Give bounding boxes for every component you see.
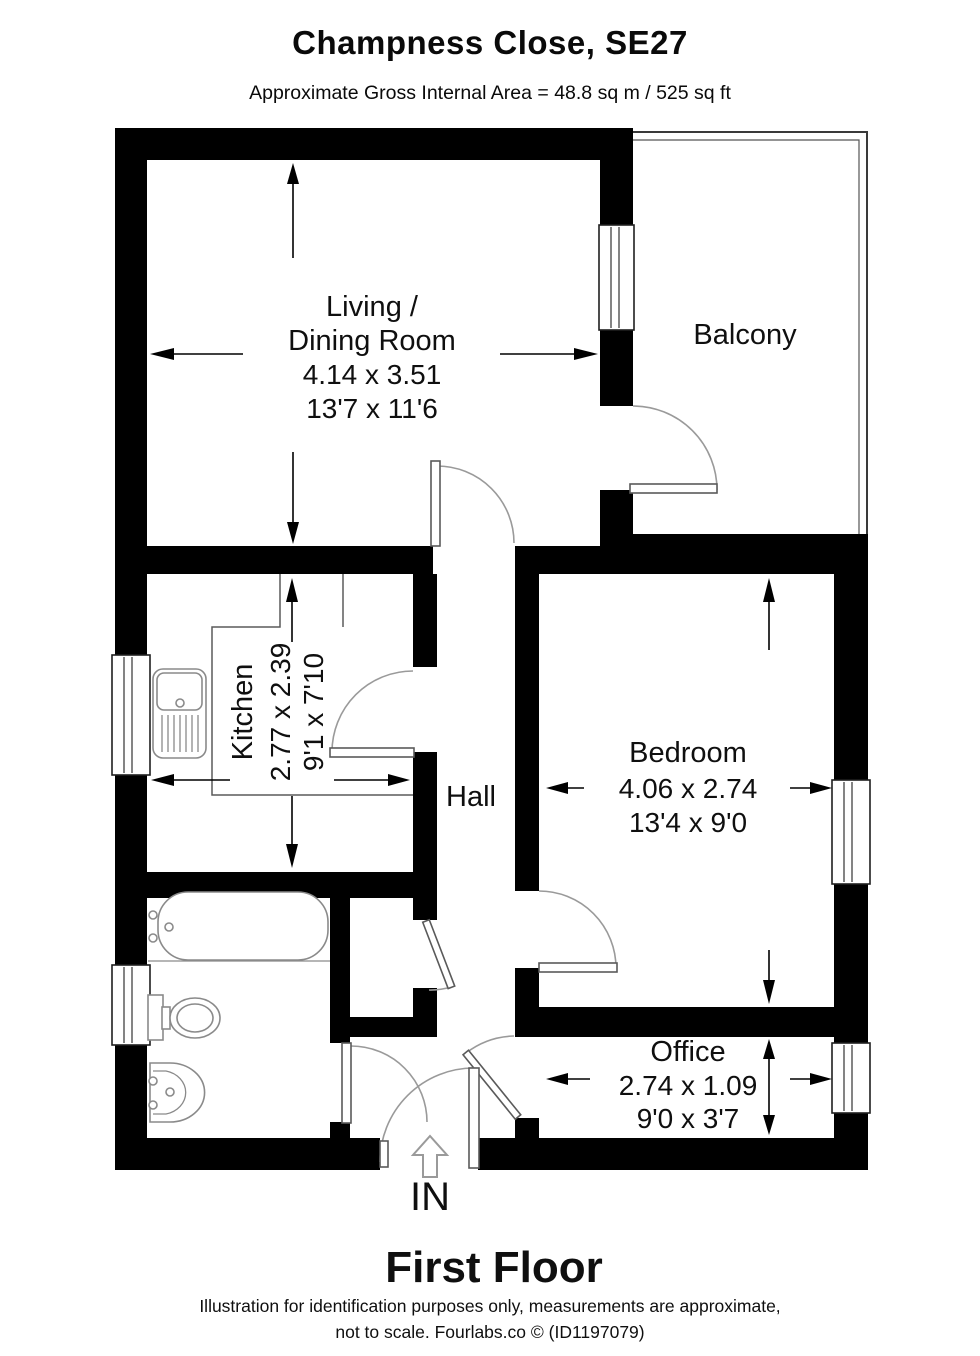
living-room-name-line2: Dining Room [288,325,456,357]
door-living-to-balcony [630,406,717,493]
footer-line1: Illustration for identification purposes… [199,1296,780,1316]
kitchen-size-metric: 2.77 x 2.39 [265,643,296,782]
label-balcony: Balcony [693,319,797,351]
bedroom-size-imperial: 13'4 x 9'0 [629,807,747,838]
window-bedroom-icon [832,780,870,884]
floor-label: First Floor [385,1243,603,1292]
kitchen-name: Kitchen [227,664,259,761]
window-living-balcony-icon [599,225,634,330]
label-office: Office 2.74 x 1.09 9'0 x 3'7 [619,1036,758,1134]
hall-name: Hall [446,781,496,813]
door-living-to-hall [431,461,514,546]
door-cupboard [423,920,455,990]
floorplan-drawing: Living / Dining Room 4.14 x 3.51 13'7 x … [0,0,980,1356]
entrance-arrow-icon [413,1136,447,1177]
bedroom-name: Bedroom [629,737,747,769]
label-bedroom: Bedroom 4.06 x 2.74 13'4 x 9'0 [619,737,758,838]
toilet-icon [148,995,220,1040]
floorplan-page: Champness Close, SE27 Approximate Gross … [0,0,980,1356]
balcony-name: Balcony [693,319,797,351]
kitchen-size-imperial: 9'1 x 7'10 [298,653,329,771]
entrance-label: IN [410,1175,450,1219]
door-bedroom [539,891,617,972]
bedroom-size-metric: 4.06 x 2.74 [619,773,758,804]
footer: Illustration for identification purposes… [199,1296,780,1342]
basin-icon [149,1063,205,1122]
window-office-icon [832,1043,870,1113]
walls [115,128,868,1170]
office-size-metric: 2.74 x 1.09 [619,1070,758,1101]
window-kitchen-icon [112,655,150,775]
office-size-imperial: 9'0 x 3'7 [637,1103,740,1134]
entrance: IN [410,1136,450,1219]
label-kitchen: Kitchen 2.77 x 2.39 9'1 x 7'10 [227,643,329,782]
label-living-dining-room: Living / Dining Room 4.14 x 3.51 13'7 x … [288,291,456,424]
footer-line2: not to scale. Fourlabs.co © (ID1197079) [335,1322,644,1342]
window-bathroom-icon [112,965,150,1045]
label-hall: Hall [446,781,496,813]
door-kitchen [330,671,414,757]
bathtub-icon [148,892,330,961]
living-room-name-line1: Living / [326,291,419,323]
living-room-size-metric: 4.14 x 3.51 [303,359,442,390]
door-bathroom [342,1043,427,1123]
office-name: Office [650,1036,725,1068]
living-room-size-imperial: 13'7 x 11'6 [306,393,438,424]
kitchen-sink-icon [153,669,206,758]
